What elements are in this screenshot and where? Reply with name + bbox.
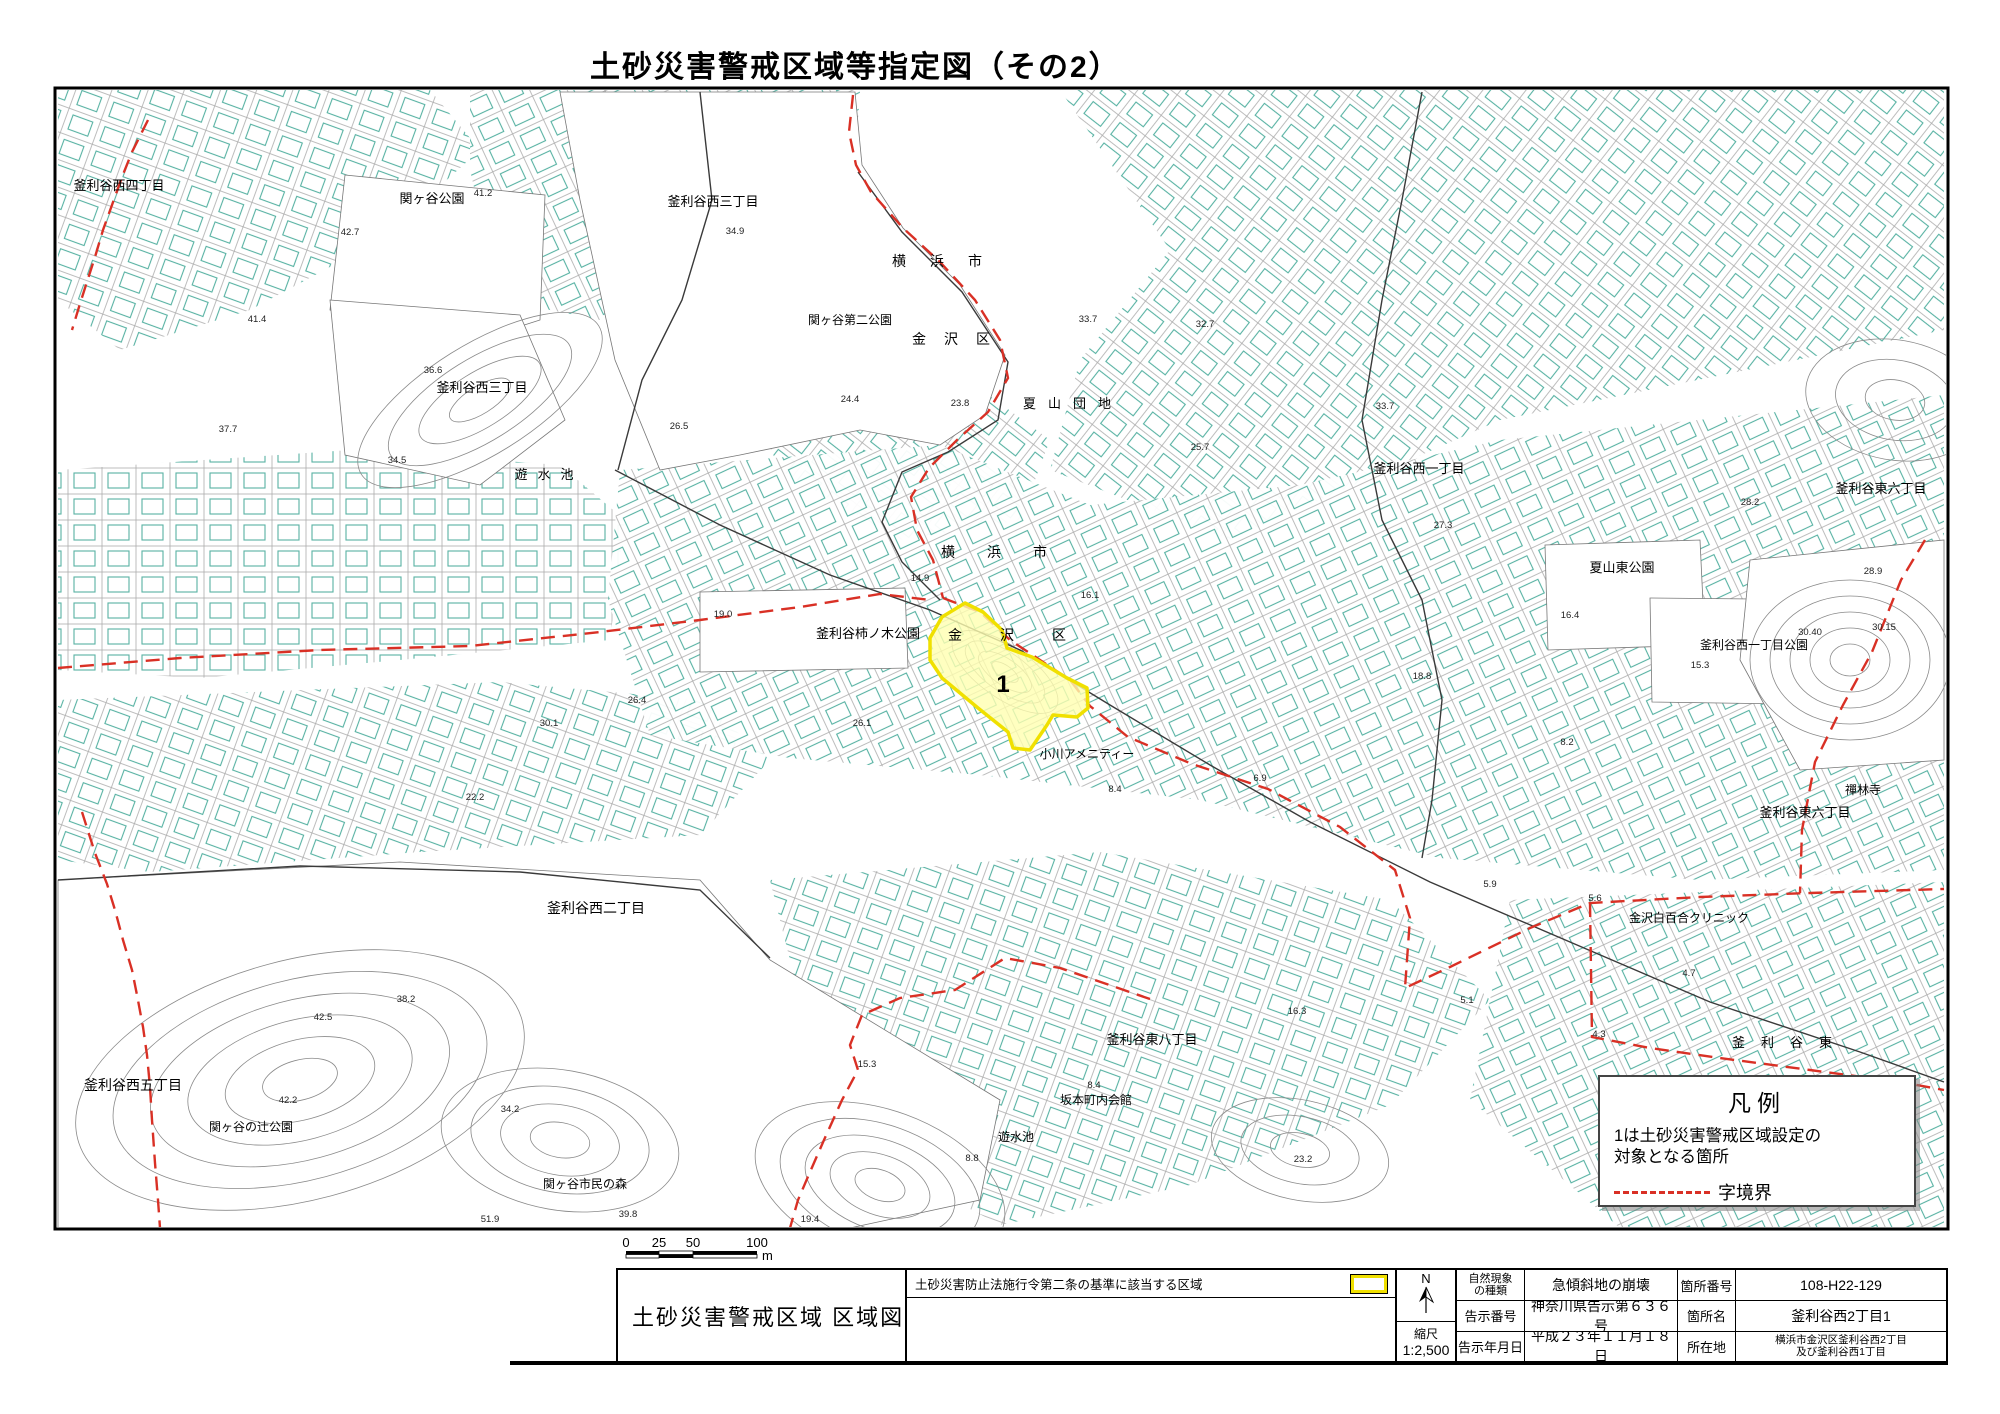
spot-height: 28.2: [1741, 497, 1760, 508]
north-scale-cell: N 縮尺 1:2,500: [1397, 1270, 1457, 1361]
scale-tick-50: 50: [686, 1235, 700, 1250]
map-label: 横浜市: [941, 544, 1079, 560]
spot-height: 5.6: [1588, 893, 1601, 904]
spot-height: 42.7: [341, 227, 360, 238]
map-label: 夏山東公園: [1589, 560, 1654, 575]
map-label: 金沢区: [912, 331, 1008, 347]
map-label: 釜利谷東六丁目: [1759, 805, 1850, 820]
site-name-value: 釜利谷西2丁目1: [1735, 1300, 1946, 1330]
map-label: 関ヶ谷の辻公園: [209, 1120, 293, 1134]
spot-height: 15.3: [1691, 660, 1710, 671]
spot-height: 27.3: [1434, 520, 1453, 531]
spot-height: 36.6: [424, 365, 443, 376]
spot-height: 37.7: [219, 424, 238, 435]
legend-desc-line2: 対象となる箇所: [1614, 1147, 1900, 1168]
map-label: 横浜市: [892, 253, 1006, 269]
spot-height: 4.7: [1682, 968, 1695, 979]
scale-bar: 0 25 50 100 m: [622, 1235, 772, 1263]
hazard-map-page: 土砂災害警戒区域等指定図（その2）: [0, 0, 2000, 1414]
spot-height: 42.2: [279, 1095, 298, 1106]
site-no-label: 箇所番号: [1677, 1270, 1735, 1300]
hazard-swatch-icon: [1351, 1275, 1387, 1293]
map-label: 金沢区: [948, 627, 1104, 643]
spot-height: 8.8: [965, 1153, 978, 1164]
phenomenon-value: 急傾斜地の崩壊: [1524, 1270, 1677, 1300]
scale-label: 縮尺: [1397, 1325, 1455, 1342]
scale-unit: m: [762, 1248, 773, 1263]
spot-height: 8.4: [1087, 1080, 1100, 1091]
map-label: 釜利谷東八丁目: [1106, 1032, 1197, 1047]
table-bottom-rule: [510, 1361, 616, 1365]
spot-height: 15.3: [858, 1059, 877, 1070]
spot-height: 19.0: [714, 609, 733, 620]
map-label: 釜利谷柿ノ木公園: [816, 626, 920, 641]
spot-height: 26.4: [628, 695, 647, 706]
map-label: 遊水池: [514, 467, 583, 482]
spot-height: 51.9: [481, 1214, 500, 1225]
spot-height: 41.4: [248, 314, 267, 325]
map-label: 釜利谷西二丁目: [547, 900, 645, 916]
map-label: 禪林寺: [1845, 782, 1881, 797]
legend-boundary-label: 字境界: [1718, 1179, 1772, 1205]
map-sheet-title: 土砂災害警戒区域 区域図: [618, 1270, 907, 1361]
spot-height: 5.1: [1460, 995, 1473, 1006]
criteria-cell: 土砂災害防止法施行令第二条の基準に該当する区域: [907, 1270, 1397, 1361]
map-label: 金沢白百合クリニック: [1629, 910, 1749, 925]
map-label: 釜利谷西五丁目: [84, 1077, 182, 1093]
spot-height: 34.9: [726, 226, 745, 237]
legend-box: 凡例 1は土砂災害警戒区域設定の 対象となる箇所 字境界: [1598, 1075, 1916, 1207]
notice-no-label: 告示番号: [1457, 1300, 1524, 1330]
spot-height: 34.2: [501, 1104, 520, 1115]
spot-height: 4.3: [1592, 1029, 1605, 1040]
spot-height: 42.5: [314, 1012, 333, 1023]
boundary-dash-icon: [1614, 1191, 1710, 1194]
legend-desc-line1: 1は土砂災害警戒区域設定の: [1614, 1126, 1900, 1147]
spot-height: 41.2: [474, 188, 493, 199]
criteria-label: 土砂災害防止法施行令第二条の基準に該当する区域: [915, 1274, 1203, 1293]
spot-height: 8.4: [1108, 784, 1121, 795]
scale-tick-0: 0: [622, 1235, 629, 1250]
spot-height: 8.2: [1560, 737, 1573, 748]
spot-height: 30.40: [1798, 627, 1822, 638]
notice-date-label: 告示年月日: [1457, 1331, 1524, 1361]
spot-height: 16.1: [1081, 590, 1100, 601]
map-label: 坂本町内会館: [1060, 1092, 1132, 1107]
spot-height: 28.9: [1864, 566, 1883, 577]
spot-height: 23.8: [951, 398, 970, 409]
spot-height: 25.7: [1191, 442, 1210, 453]
spot-height: 19.4: [801, 1214, 820, 1225]
spot-height: 24.4: [841, 394, 860, 405]
site-name-label: 箇所名: [1677, 1300, 1735, 1330]
map-label: 関ヶ谷第二公園: [808, 313, 892, 327]
spot-height: 14.9: [911, 573, 930, 584]
scale-value: 1:2,500: [1397, 1342, 1455, 1358]
spot-height: 26.5: [670, 421, 689, 432]
spot-height: 30.1: [540, 718, 559, 729]
spot-height: 5.9: [1483, 879, 1496, 890]
spot-height: 33.7: [1079, 314, 1098, 325]
spot-height: 6.9: [1253, 773, 1266, 784]
map-label: 関ヶ谷市民の森: [543, 1176, 627, 1191]
spot-height: 33.7: [1376, 401, 1395, 412]
location-label: 所在地: [1677, 1331, 1735, 1361]
notice-no-value: 神奈川県告示第６３６号: [1524, 1300, 1677, 1330]
spot-height: 23.2: [1294, 1154, 1313, 1165]
spot-height: 34.5: [388, 455, 407, 466]
legend-title: 凡例: [1614, 1084, 1900, 1118]
map-label: 釜利谷西四丁目: [73, 178, 164, 193]
scale-tick-25: 25: [652, 1235, 666, 1250]
map-label: 関ヶ谷公園: [399, 191, 464, 206]
spot-height: 38.2: [397, 994, 416, 1005]
map-label: 釜利谷東六丁目: [1835, 481, 1926, 496]
map-label: 夏山団地: [1023, 396, 1123, 411]
map-label: 遊水池: [998, 1129, 1034, 1144]
spot-height: 39.8: [619, 1209, 638, 1220]
map-label: 釜利谷東: [1732, 1035, 1848, 1050]
north-label: N: [1397, 1272, 1455, 1285]
spot-height: 16.3: [1288, 1006, 1307, 1017]
spot-height: 22.2: [466, 792, 485, 803]
north-arrow-icon: [1415, 1285, 1437, 1315]
map-label: 釜利谷西一丁目: [1373, 461, 1464, 476]
map-label: 釜利谷西三丁目: [667, 194, 758, 209]
notice-date-value: 平成２３年１１月１８日: [1524, 1331, 1677, 1361]
spot-height: 18.8: [1413, 671, 1432, 682]
title-block: 土砂災害警戒区域 区域図 土砂災害防止法施行令第二条の基準に該当する区域 N 縮…: [616, 1268, 1948, 1365]
spot-height: 32.7: [1196, 319, 1215, 330]
spot-height: 16.4: [1561, 610, 1580, 621]
notice-table: 自然現象の種類 急傾斜地の崩壊 箇所番号 108-H22-129 告示番号 神奈…: [1457, 1270, 1946, 1361]
map-label: 釜利谷西一丁目公園: [1700, 637, 1808, 652]
map-label: 釜利谷西三丁目: [436, 380, 527, 395]
spot-height: 26.1: [853, 718, 872, 729]
map-label: 小川アメニティー: [1040, 747, 1135, 761]
location-value: 横浜市金沢区釜利谷西2丁目及び釜利谷西1丁目: [1735, 1331, 1946, 1361]
hazard-id-label: 1: [996, 671, 1009, 698]
phenomenon-label: 自然現象の種類: [1457, 1270, 1524, 1300]
site-no-value: 108-H22-129: [1735, 1270, 1946, 1300]
spot-height: 30.15: [1872, 622, 1896, 633]
